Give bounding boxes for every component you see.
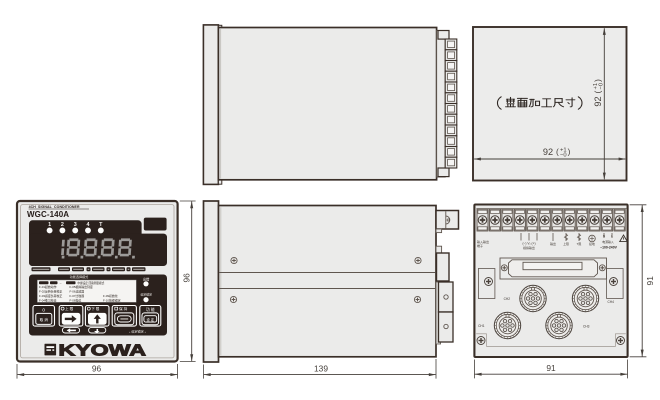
svg-text:F-08挡位: F-08挡位: [70, 297, 82, 302]
svg-text:91: 91: [645, 276, 655, 286]
svg-text:电源输入: 电源输入: [602, 239, 614, 244]
svg-text:4CH SIGNAL CONDITIONER: 4CH SIGNAL CONDITIONER: [29, 205, 80, 209]
svg-text:CH3: CH3: [583, 325, 590, 329]
svg-text:下 限: 下 限: [91, 306, 100, 311]
svg-text:1: 1: [48, 222, 51, 228]
svg-text:KYOWA: KYOWA: [59, 343, 147, 360]
svg-text:(: (: [593, 91, 603, 94]
svg-text:F-03感度负荷校正: F-03感度负荷校正: [39, 293, 62, 298]
svg-text:模拟输出: 模拟输出: [523, 245, 535, 250]
svg-text:F-04练习检查: F-04练习检查: [39, 297, 57, 302]
svg-text:功能选择模式: 功能选择模式: [70, 274, 89, 279]
svg-text:139: 139: [314, 364, 328, 374]
svg-text:92: 92: [543, 147, 553, 157]
svg-text:接地: 接地: [589, 241, 595, 246]
svg-text:功 能: 功 能: [146, 307, 155, 312]
svg-text:CH2: CH2: [504, 297, 511, 301]
svg-text:F-07比较器: F-07比较器: [70, 293, 85, 298]
svg-text:设 定: 设 定: [146, 317, 154, 322]
svg-text:92: 92: [593, 96, 603, 106]
svg-text:出错: 出错: [143, 277, 150, 282]
svg-text:端子: 端子: [477, 243, 483, 248]
svg-text:保 持: 保 持: [119, 306, 128, 311]
svg-text:~100-240V: ~100-240V: [600, 245, 617, 249]
svg-text:取 消: 取 消: [40, 317, 49, 322]
svg-text:F-09初始化: F-09初始化: [103, 293, 118, 298]
svg-text:0: 0: [42, 307, 45, 312]
svg-text:CH4: CH4: [608, 300, 615, 304]
svg-text:→: →: [59, 281, 62, 285]
svg-text:−0: −0: [560, 153, 567, 159]
svg-text:⌞ 设定锁定 ⌟: ⌞ 设定锁定 ⌟: [129, 328, 147, 333]
svg-text:F-02反转负荷校正: F-02反转负荷校正: [39, 289, 62, 294]
svg-text:): ): [568, 147, 571, 157]
svg-text:N: N: [603, 234, 605, 238]
svg-text:F-01起始动作: F-01起始动作: [39, 284, 57, 289]
svg-text:输出: 输出: [550, 241, 556, 246]
svg-text:设定锁定: 设定锁定: [140, 291, 152, 296]
svg-text:WGC-140A: WGC-140A: [27, 210, 69, 219]
svg-text:4: 4: [87, 222, 90, 228]
svg-text:96: 96: [181, 273, 191, 283]
svg-text:2: 2: [61, 222, 64, 228]
svg-text:): ): [593, 79, 603, 82]
svg-text:F-06滤波器: F-06滤波器: [70, 289, 85, 294]
svg-text:−0: −0: [598, 83, 604, 90]
svg-text:(: (: [556, 147, 559, 157]
svg-text:3: 3: [74, 222, 77, 228]
svg-text:CH1: CH1: [478, 324, 485, 328]
svg-text:F-05模拟输出刻度: F-05模拟输出刻度: [70, 284, 93, 289]
svg-text:T限: T限: [577, 241, 582, 246]
svg-text:F-10按键锁定: F-10按键锁定: [103, 297, 121, 302]
svg-text:上 限: 上 限: [65, 306, 74, 311]
svg-text:91: 91: [546, 363, 556, 373]
svg-text:上限: 上限: [563, 241, 569, 246]
svg-text:96: 96: [92, 363, 102, 373]
